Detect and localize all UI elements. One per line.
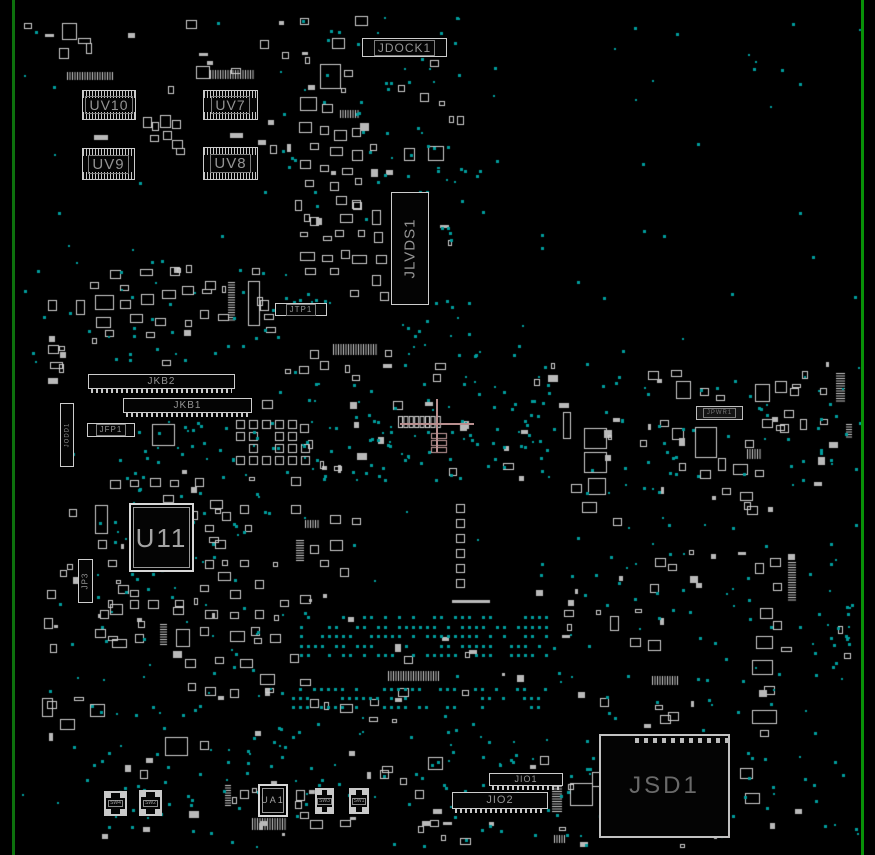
component-label: JKB1 — [174, 401, 202, 411]
component-label: JDOCK1 — [374, 40, 435, 56]
component-label: UV9 — [88, 155, 128, 174]
component-uv9[interactable]: UV9 — [82, 148, 135, 180]
component-label: JIO1 — [514, 775, 537, 784]
board-edge-right — [861, 0, 864, 855]
switch-tab — [315, 788, 322, 795]
switch-tab — [104, 791, 111, 798]
component-uv10[interactable]: UV10 — [82, 90, 136, 120]
component-jio1[interactable]: JIO1 — [489, 773, 563, 786]
component-jp3[interactable]: JP3 — [78, 559, 93, 603]
switch-tab — [349, 807, 356, 814]
component-jsd1[interactable]: JSD1 — [599, 734, 730, 838]
switch-tab — [362, 788, 369, 795]
component-label: JIO2 — [486, 795, 513, 806]
switch-tab — [155, 790, 162, 797]
switch-tab — [327, 807, 334, 814]
component-label: JPWR1 — [703, 408, 736, 418]
component-label: SW4 — [108, 800, 123, 807]
component-label: JLVDS1 — [403, 219, 418, 279]
component-u11[interactable]: U11 — [129, 503, 194, 572]
switch-tab — [120, 791, 127, 798]
component-ua1[interactable]: UA1 — [258, 784, 288, 817]
switch-tab — [120, 809, 127, 816]
component-jlvds1[interactable]: JLVDS1 — [391, 192, 429, 305]
component-label: JSD1 — [629, 774, 700, 798]
component-label: UV10 — [85, 96, 132, 114]
component-label: SW1 — [352, 798, 367, 805]
component-label: JP3 — [82, 573, 90, 590]
component-uv8[interactable]: UV8 — [203, 147, 258, 180]
component-jdock1[interactable]: JDOCK1 — [362, 38, 447, 57]
component-label: JTP1 — [286, 304, 317, 316]
board-viewport[interactable]: JDOCK1UV10UV7UV9UV8JLVDS1JTP1JKB2JKB1JFP… — [0, 0, 875, 855]
connector-pins — [492, 785, 560, 790]
switch-tab — [327, 788, 334, 795]
component-sw1[interactable]: SW1 — [349, 788, 369, 814]
component-sw3[interactable]: SW3 — [315, 788, 334, 814]
switch-tab — [139, 790, 146, 797]
component-jkb2[interactable]: JKB2 — [88, 374, 235, 389]
component-label: JKB2 — [148, 377, 176, 387]
card-slot-pins — [635, 738, 729, 743]
component-jfp1[interactable]: JFP1 — [87, 423, 135, 437]
connector-pins — [455, 808, 545, 813]
switch-tab — [349, 788, 356, 795]
component-label: SW2 — [143, 800, 158, 807]
selection-crosshair-v — [436, 399, 438, 452]
component-jodd1[interactable]: JODD1 — [60, 403, 74, 467]
component-sw4[interactable]: SW4 — [104, 791, 127, 816]
component-jtp1[interactable]: JTP1 — [275, 303, 327, 316]
component-uv7[interactable]: UV7 — [203, 90, 258, 120]
switch-tab — [104, 809, 111, 816]
connector-pins — [126, 412, 249, 417]
component-label: UA1 — [261, 796, 285, 805]
board-edge-left — [12, 0, 15, 855]
component-label: SW3 — [317, 798, 332, 805]
component-jpwr1[interactable]: JPWR1 — [696, 406, 743, 420]
component-label: U11 — [136, 525, 188, 551]
connector-pins — [91, 388, 232, 393]
component-label: UV7 — [211, 96, 249, 114]
switch-tab — [315, 807, 322, 814]
component-jio2[interactable]: JIO2 — [452, 792, 548, 809]
switch-tab — [155, 809, 162, 816]
switch-tab — [362, 807, 369, 814]
component-sw2[interactable]: SW2 — [139, 790, 162, 816]
component-label: UV8 — [210, 154, 250, 173]
component-label: JODD1 — [64, 423, 70, 448]
switch-tab — [139, 809, 146, 816]
component-jkb1[interactable]: JKB1 — [123, 398, 252, 413]
component-label: JFP1 — [96, 424, 127, 436]
